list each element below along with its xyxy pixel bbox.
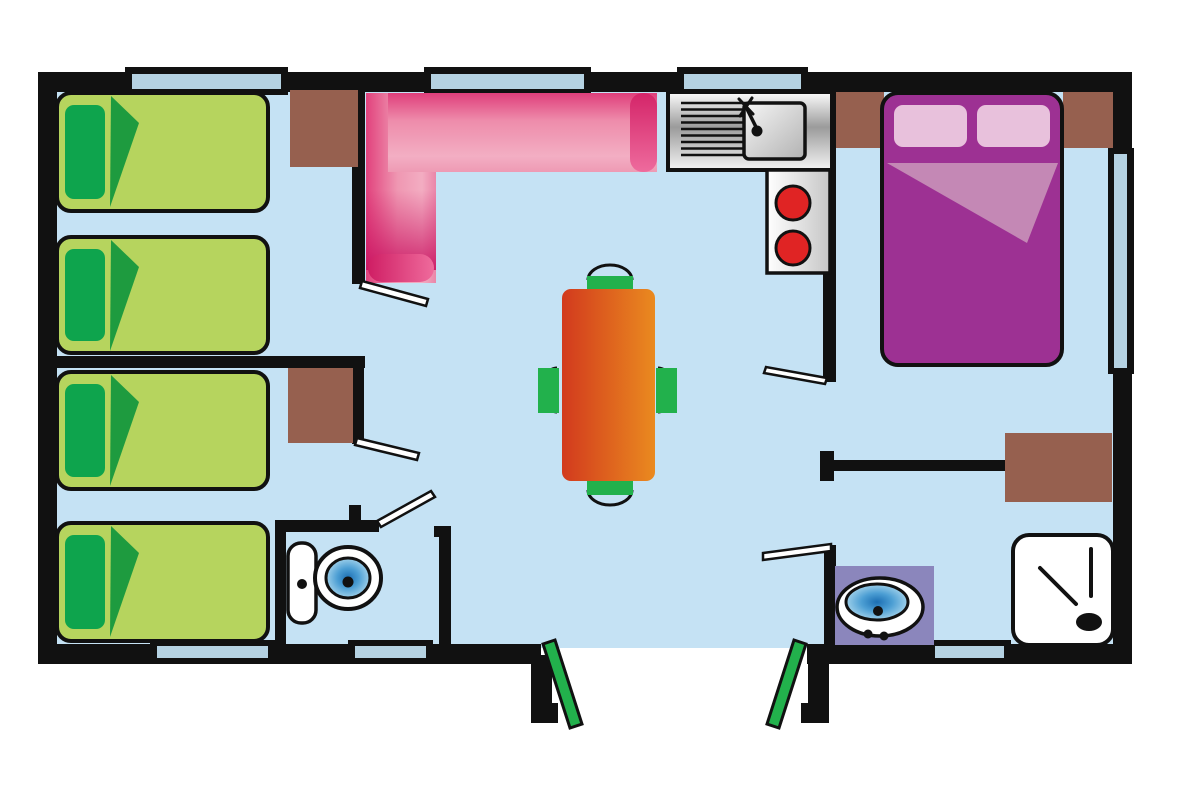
entrance-jamb-left-foot [531,703,558,723]
washbasin-faucet-dot-1 [864,630,873,639]
partition-bedroom2-horizontal [40,356,365,368]
toilet-cistern-button [297,579,307,589]
partition-bedroom2-vertical [352,356,364,444]
floorplan-canvas [0,0,1200,800]
sofa-horizontal [388,93,657,172]
bathroom2-wall [824,545,836,648]
chair-left [538,368,559,413]
window-right-pane [1114,154,1127,368]
window-top-1-pane [132,74,281,89]
entrance-jamb-right-foot [801,703,829,723]
toilet-wall-right [439,526,451,648]
stove-burner-2 [776,231,810,265]
wardrobe-rail-bar [834,460,1007,471]
wardrobe-bedroom3 [1063,92,1113,148]
window-top-3-pane [684,74,801,89]
bed-single-2-pillow [65,249,105,341]
bed-single-3-pillow [65,384,105,477]
chair-right [656,368,677,413]
shower-drain [1076,613,1102,631]
window-top-2-pane [431,74,584,89]
wardrobe-bedroom2 [288,368,353,443]
window-bottom-2-pane [355,646,426,658]
toilet-wall-left [275,520,286,648]
bed-single-1-pillow [65,105,105,199]
wardrobe-kitchen [836,92,884,148]
entrance-door-right-leaf [767,640,806,728]
window-bottom-3-pane [935,646,1004,658]
outer-wall-bottom-left [38,644,541,664]
wardrobe-bedroom1 [290,90,358,167]
sofa-vertical-cap [368,254,434,282]
toilet-wall-stub [349,505,361,525]
window-bottom-1-pane [157,646,268,658]
wardrobe-rail-cap [820,451,834,481]
bed-single-4-pillow [65,535,105,629]
washbasin-drain-dot [873,606,883,616]
bed-double-pillow-1 [894,105,967,147]
wardrobe-bathroom2 [1005,433,1112,502]
washbasin-faucet-dot-2 [880,632,889,641]
toilet-wall-top [275,520,379,532]
sofa-horizontal-cap [630,93,657,172]
dining-table [562,289,655,481]
floor-plan-page [0,0,1200,800]
toilet-drain-dot [343,577,354,588]
stove-burner-1 [776,186,810,220]
bed-double-pillow-2 [977,105,1050,147]
sink-drain-dot [752,126,763,137]
